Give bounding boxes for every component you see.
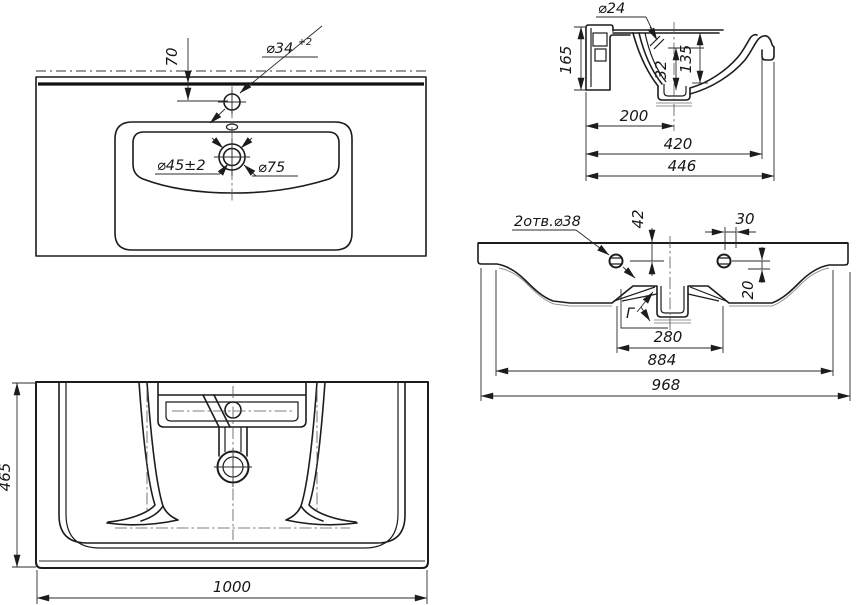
fixing-hole-section bbox=[593, 33, 607, 46]
dim-body-width: 968 bbox=[652, 376, 681, 394]
faucet-ledge bbox=[158, 382, 306, 427]
back-wall-outline bbox=[586, 25, 613, 90]
dim-depth: 465 bbox=[0, 463, 14, 492]
detail-mark-label: Г bbox=[626, 306, 636, 322]
inner-contour-a bbox=[59, 382, 405, 543]
mount-hole-left-slot bbox=[610, 258, 622, 264]
drain-box-inner bbox=[661, 286, 684, 313]
basin-outer-contour bbox=[115, 122, 352, 250]
left-leg bbox=[107, 382, 178, 525]
dim-mount-holes: 2отв.⌀38 bbox=[514, 214, 581, 230]
side-section-view: ⌀24 165 32 135 200 420 446 bbox=[557, 1, 774, 181]
leader-line bbox=[596, 17, 657, 40]
dim-overflow-hole: ⌀24 bbox=[598, 1, 625, 17]
overflow-hole-ticks bbox=[650, 36, 664, 49]
leader-arrow bbox=[623, 267, 635, 278]
ext-lines bbox=[725, 227, 736, 250]
ext-lines bbox=[12, 383, 36, 567]
leader-arrow bbox=[244, 165, 256, 176]
fixing-hole-section bbox=[595, 49, 606, 61]
outer-outline bbox=[36, 382, 428, 568]
dim-hole-down-offset: 42 bbox=[629, 209, 647, 228]
washbasin-drawing: 70 ⌀34 +2 ⌀45±2 ⌀75 bbox=[0, 0, 867, 605]
dim-height: 165 bbox=[557, 46, 575, 75]
dim-drain-offset: 200 bbox=[620, 107, 649, 125]
detail-arrow bbox=[641, 307, 650, 321]
dim-depth-total: 446 bbox=[668, 157, 697, 175]
bottom-view: 465 1000 bbox=[0, 382, 428, 604]
technical-drawing-sheet: 70 ⌀34 +2 ⌀45±2 ⌀75 bbox=[0, 0, 867, 605]
dim-overflow-drop: 32 bbox=[652, 60, 670, 79]
dim-drain-hole: ⌀45±2 bbox=[157, 158, 206, 174]
leader-arrow bbox=[212, 138, 223, 148]
dim-faucet-hole: ⌀34 bbox=[266, 41, 293, 57]
front-outer-profile bbox=[690, 36, 774, 94]
dim-line-70 bbox=[177, 38, 228, 101]
detail-arrow bbox=[637, 292, 653, 312]
dim-faucet-hole-tolerance: +2 bbox=[298, 37, 312, 48]
inner-contour-b bbox=[66, 382, 398, 548]
drain-shadow-lines bbox=[654, 320, 691, 323]
mount-hole-right-slot bbox=[718, 258, 730, 264]
dim-depth-inner: 420 bbox=[664, 135, 693, 153]
body-profile bbox=[478, 243, 848, 317]
dim-width: 1000 bbox=[213, 578, 251, 596]
ext-lines bbox=[574, 27, 586, 90]
rear-view: 2отв.⌀38 42 30 20 Г 280 884 968 bbox=[478, 209, 850, 401]
dim-mount-span: 884 bbox=[648, 351, 677, 369]
top-view: 70 ⌀34 +2 ⌀45±2 ⌀75 bbox=[36, 26, 426, 256]
deck-top-edges bbox=[613, 30, 723, 33]
leader-arrow bbox=[210, 109, 225, 123]
drain-recess-inner bbox=[664, 84, 686, 96]
dim-drain-recess: ⌀75 bbox=[258, 160, 285, 176]
faucet-hole-crosshair bbox=[218, 90, 246, 114]
dim-hole-side-offset: 30 bbox=[735, 210, 754, 228]
dim-hole-drop: 20 bbox=[739, 280, 757, 299]
mount-hole-left bbox=[610, 255, 623, 268]
leader-arrow bbox=[241, 138, 252, 148]
dim-faucet-offset: 70 bbox=[163, 47, 181, 66]
ext-lines bbox=[732, 261, 770, 269]
ext-lines bbox=[630, 243, 664, 261]
dim-recess-width: 280 bbox=[654, 328, 683, 346]
right-leg bbox=[286, 382, 357, 525]
deck-outline bbox=[36, 77, 426, 256]
dim-basin-depth: 135 bbox=[677, 45, 695, 74]
mount-hole-right bbox=[718, 255, 731, 268]
